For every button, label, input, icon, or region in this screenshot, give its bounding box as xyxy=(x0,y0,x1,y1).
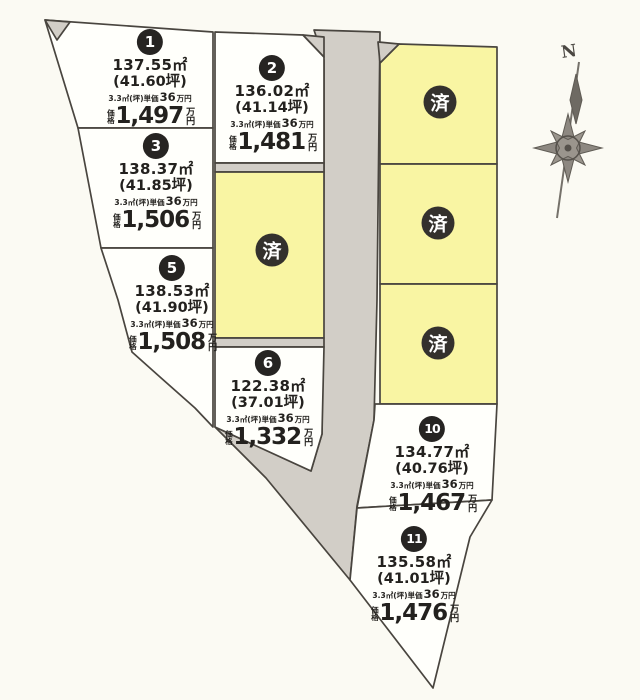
compass-rose-icon xyxy=(534,62,602,218)
plot-6-area: 122.38㎡ xyxy=(225,378,311,395)
plot-1-number-badge: 1 xyxy=(137,29,163,55)
plot-5-area: 138.53㎡ xyxy=(129,283,215,300)
plot-6-unit-price: 3.3㎡(坪)単価 36 万円 xyxy=(225,413,311,425)
lot-map-drawing xyxy=(0,0,640,700)
plot-11-tsubo: (41.01坪) xyxy=(371,571,457,587)
plot-2-unit-price: 3.3㎡(坪)単価 36 万円 xyxy=(229,118,315,130)
plot-11-price: 価格 1,476 万円 xyxy=(371,602,457,625)
plot-3-price: 価格 1,506 万円 xyxy=(113,209,199,232)
plot-1-tsubo: (41.60坪) xyxy=(107,74,193,90)
plot-11-area: 135.58㎡ xyxy=(371,554,457,571)
plot-5-label: 5 138.53㎡ (41.90坪) 3.3㎡(坪)単価 36 万円 価格 1,… xyxy=(129,255,215,354)
plot-2-label: 2 136.02㎡ (41.14坪) 3.3㎡(坪)単価 36 万円 価格 1,… xyxy=(229,55,315,154)
plot-10-label: 10 134.77㎡ (40.76坪) 3.3㎡(坪)単価 36 万円 価格 1… xyxy=(389,416,475,515)
compass-north-label: N xyxy=(560,41,578,63)
plot-5-tsubo: (41.90坪) xyxy=(129,300,215,316)
plot-1-price: 価格 1,497 万円 xyxy=(107,105,193,128)
plot-6-price: 価格 1,332 万円 xyxy=(225,426,311,449)
plot-6-number-badge: 6 xyxy=(255,350,281,376)
plot-10-unit-price: 3.3㎡(坪)単価 36 万円 xyxy=(389,479,475,491)
plot-3-number-badge: 3 xyxy=(143,133,169,159)
sold-badge: 済 xyxy=(422,207,455,240)
plot-3-label: 3 138.37㎡ (41.85坪) 3.3㎡(坪)単価 36 万円 価格 1,… xyxy=(113,133,199,232)
plot-2-area: 136.02㎡ xyxy=(229,83,315,100)
plot-10-price: 価格 1,467 万円 xyxy=(389,492,475,515)
plot-6-label: 6 122.38㎡ (37.01坪) 3.3㎡(坪)単価 36 万円 価格 1,… xyxy=(225,350,311,449)
plot-11-number-badge: 11 xyxy=(401,526,427,552)
sold-badge: 済 xyxy=(256,234,289,267)
plot-5-number-badge: 5 xyxy=(159,255,185,281)
plot-2-price: 価格 1,481 万円 xyxy=(229,131,315,154)
plot-10-tsubo: (40.76坪) xyxy=(389,461,475,477)
plot-10-number-badge: 10 xyxy=(419,416,445,442)
alley-strip-lower xyxy=(215,338,324,347)
plot-5-unit-price: 3.3㎡(坪)単価 36 万円 xyxy=(129,318,215,330)
plot-3-area: 138.37㎡ xyxy=(113,161,199,178)
plot-10-area: 134.77㎡ xyxy=(389,444,475,461)
alley-strip-upper xyxy=(215,163,324,172)
plot-1-label: 1 137.55㎡ (41.60坪) 3.3㎡(坪)単価 36 万円 価格 1,… xyxy=(107,29,193,128)
sold-badge: 済 xyxy=(422,327,455,360)
plot-1-area: 137.55㎡ xyxy=(107,57,193,74)
lot-map-page: N 1 137.55㎡ (41.60坪) 3.3㎡(坪)単価 36 万円 価格 … xyxy=(0,0,640,700)
plot-1-unit-price: 3.3㎡(坪)単価 36 万円 xyxy=(107,92,193,104)
plot-3-tsubo: (41.85坪) xyxy=(113,178,199,194)
plot-5-price: 価格 1,508 万円 xyxy=(129,331,215,354)
plot-2-tsubo: (41.14坪) xyxy=(229,100,315,116)
plot-3-unit-price: 3.3㎡(坪)単価 36 万円 xyxy=(113,196,199,208)
plot-11-unit-price: 3.3㎡(坪)単価 36 万円 xyxy=(371,589,457,601)
plot-2-number-badge: 2 xyxy=(259,55,285,81)
plot-6-tsubo: (37.01坪) xyxy=(225,395,311,411)
plot-11-label: 11 135.58㎡ (41.01坪) 3.3㎡(坪)単価 36 万円 価格 1… xyxy=(371,526,457,625)
sold-badge: 済 xyxy=(424,86,457,119)
